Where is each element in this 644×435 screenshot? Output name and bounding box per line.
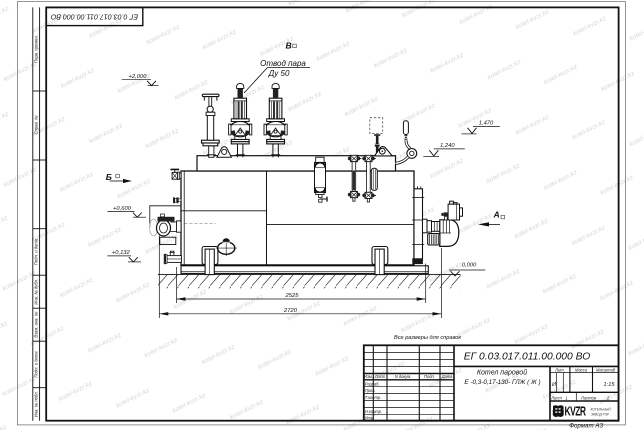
svg-text:ЗАВОД РЭР: ЗАВОД РЭР — [591, 412, 610, 416]
svg-text:Пров.: Пров. — [365, 388, 376, 393]
svg-text:Лист: Лист — [550, 395, 562, 400]
svg-text:Масштаб: Масштаб — [596, 367, 616, 372]
svg-text:Все размеры для справок: Все размеры для справок — [394, 335, 461, 341]
svg-text:KVZR: KVZR — [565, 405, 587, 419]
svg-text:Б: Б — [106, 172, 112, 182]
svg-text:+0,132: +0,132 — [112, 250, 131, 256]
svg-text:Отвод пара: Отвод пара — [260, 59, 306, 68]
svg-text:Подп. и дата: Подп. и дата — [34, 238, 39, 265]
svg-text:Подп. и дата: Подп. и дата — [34, 351, 39, 378]
svg-text:Инв. № дубл.: Инв. № дубл. — [34, 279, 39, 305]
svg-text:Перв. примен.: Перв. примен. — [34, 35, 39, 63]
svg-text:Формат А3: Формат А3 — [569, 423, 603, 430]
svg-text:2720: 2720 — [283, 308, 298, 314]
svg-text:Н.контр.: Н.контр. — [365, 409, 382, 414]
svg-text:0,000: 0,000 — [462, 262, 477, 268]
svg-text:Разраб.: Разраб. — [365, 381, 380, 386]
svg-text:Лит.: Лит. — [554, 367, 565, 372]
svg-text:Справ. №: Справ. № — [34, 115, 39, 134]
svg-text:И: И — [552, 382, 556, 388]
svg-text:2525: 2525 — [285, 293, 300, 299]
svg-text:1: 1 — [565, 395, 567, 400]
svg-text:Листов: Листов — [580, 395, 597, 400]
svg-text:Котел паровой: Котел паровой — [477, 368, 527, 376]
svg-text:1,240: 1,240 — [440, 143, 455, 149]
svg-text:Ду 50: Ду 50 — [268, 69, 290, 78]
svg-text:Утв.: Утв. — [365, 416, 374, 421]
svg-text:N докум.: N докум. — [395, 374, 412, 379]
svg-text:Е -0,3-0,17-130- ГЛЖ ( Ж ): Е -0,3-0,17-130- ГЛЖ ( Ж ) — [464, 379, 540, 386]
svg-text:+0,600: +0,600 — [113, 206, 132, 212]
svg-text:Т.контр.: Т.контр. — [365, 395, 382, 400]
svg-text:ЕГ 0.03.017.011.00.000 ВО: ЕГ 0.03.017.011.00.000 ВО — [464, 352, 591, 363]
svg-text:Масса: Масса — [575, 367, 588, 372]
svg-text:1,470: 1,470 — [479, 121, 494, 127]
svg-text:В: В — [286, 41, 292, 51]
svg-text:Инв. № подл.: Инв. № подл. — [34, 391, 39, 417]
svg-text:Взам. инв. №: Взам. инв. № — [34, 311, 39, 337]
svg-text:Изм.: Изм. — [364, 374, 373, 379]
svg-text:ЕГ 0.03.017.011.00.000 ВО: ЕГ 0.03.017.011.00.000 ВО — [50, 13, 138, 21]
svg-text:А: А — [493, 210, 500, 220]
svg-text:1:15: 1:15 — [604, 382, 616, 388]
svg-text:КОТЕЛЬНЫЙ: КОТЕЛЬНЫЙ — [590, 408, 611, 412]
svg-text:Дата: Дата — [441, 374, 454, 379]
svg-text:Лист: Лист — [374, 374, 386, 379]
svg-text:Подп.: Подп. — [424, 374, 435, 379]
